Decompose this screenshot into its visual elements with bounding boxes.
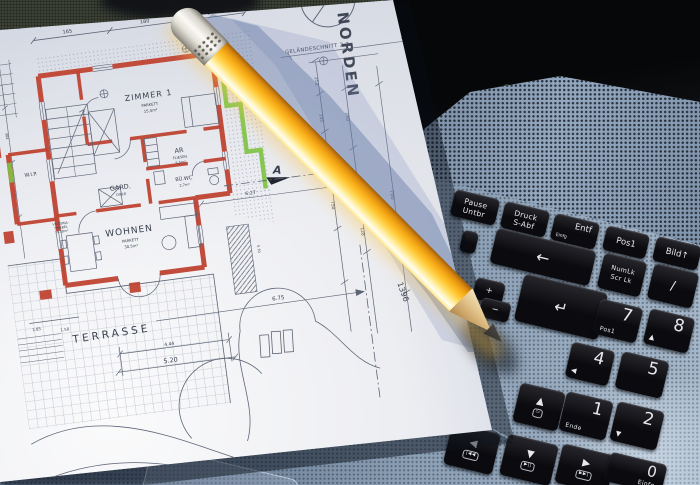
prev-track-icon: |◀◀ bbox=[462, 449, 479, 461]
display-toggle-icon: ▭ bbox=[531, 408, 543, 419]
next-track-icon: ▶▶| bbox=[575, 469, 592, 481]
photo-blueprint-pencil-laptop: PauseUntbr DruckS-Abf EntfEinfg Pos1 Bil… bbox=[0, 0, 700, 485]
play-pause-icon: ▶|| bbox=[520, 461, 536, 473]
